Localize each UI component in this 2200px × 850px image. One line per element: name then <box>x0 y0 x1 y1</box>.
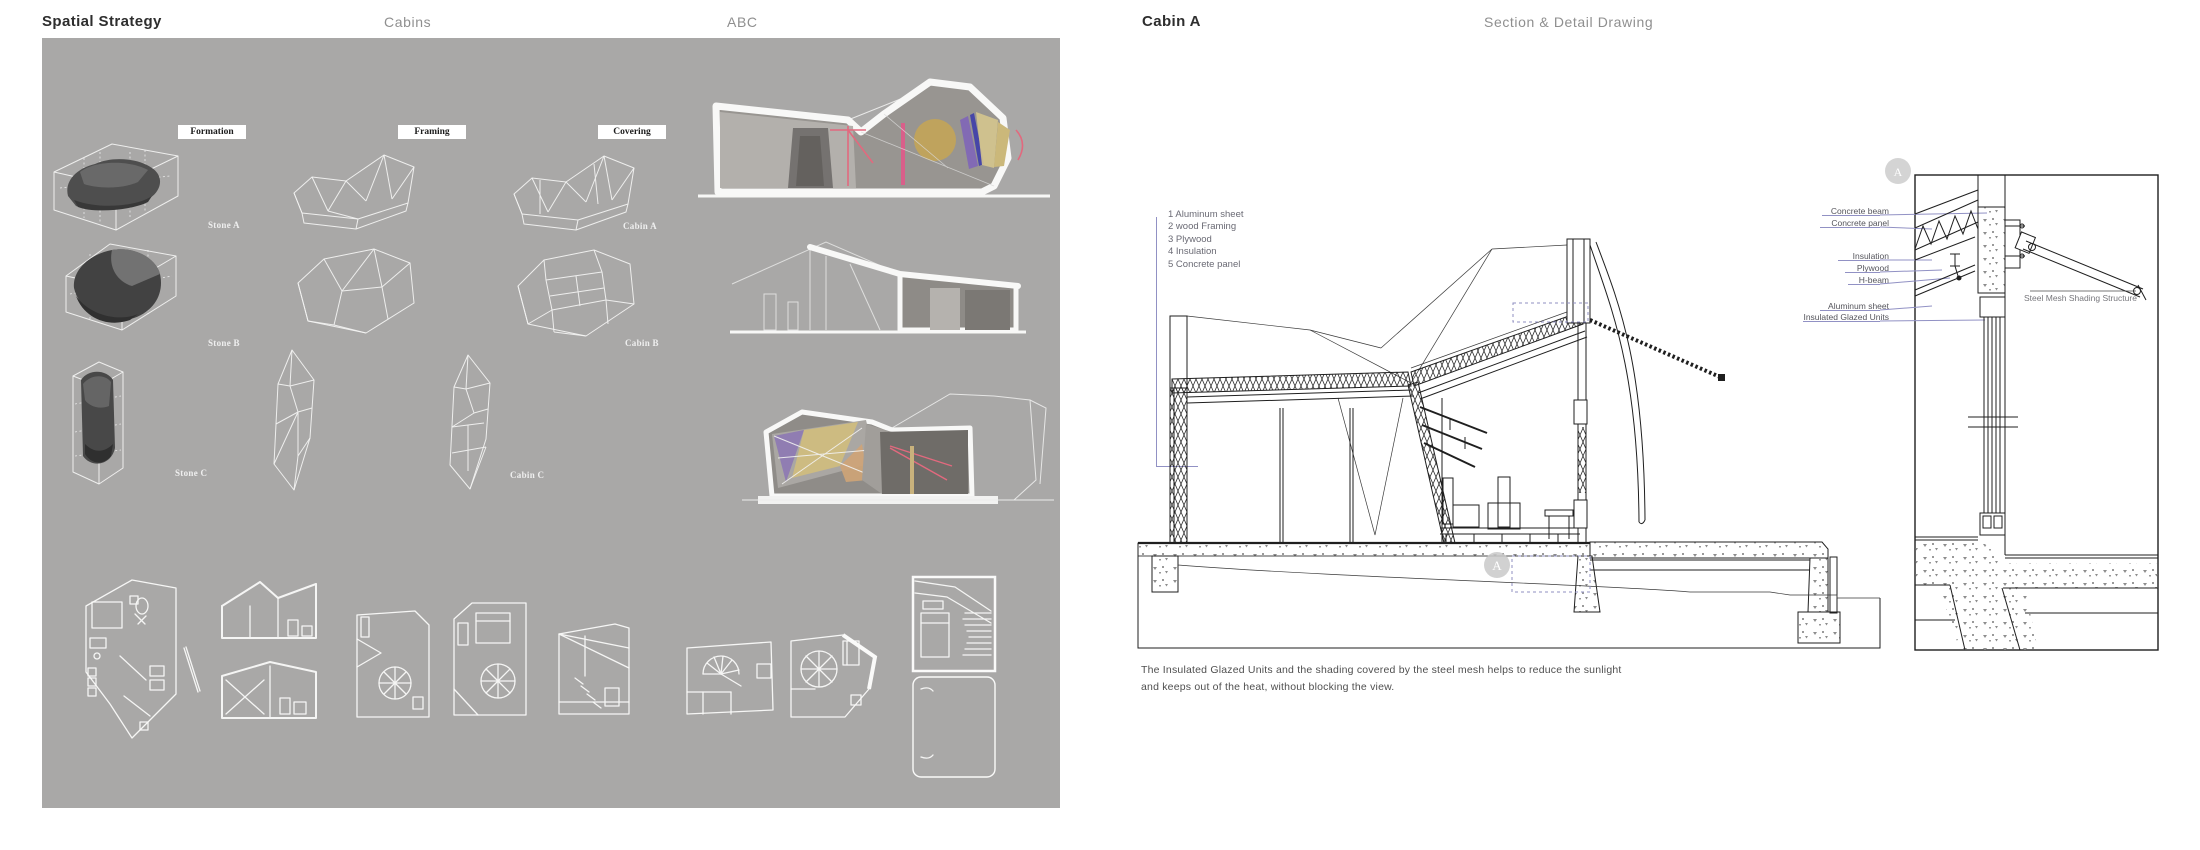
plan-small-cabin <box>555 618 635 722</box>
right-page-title: Cabin A <box>1142 13 1201 30</box>
left-page-title: Spatial Strategy <box>42 13 162 30</box>
column-label-framing: Framing <box>398 125 466 139</box>
leader-concrete-beam <box>1822 215 1880 216</box>
covering-c-wireframe <box>438 351 500 493</box>
detail-callout-a: A <box>1894 165 1903 179</box>
leader-insulation <box>1838 260 1880 261</box>
framing-b-wireframe <box>288 241 426 341</box>
plan-with-spiral-stair-3 <box>787 631 881 723</box>
caption-line-2: and keeps out of the heat, without block… <box>1141 679 1622 696</box>
section-caption: The Insulated Glazed Units and the shadi… <box>1141 662 1622 696</box>
stone-c-label: Stone C <box>175 468 207 478</box>
plan-section-lower <box>220 658 322 724</box>
covering-b-wireframe <box>506 244 646 344</box>
column-label-formation: Formation <box>178 125 246 139</box>
stone-b-photo-diagram <box>60 236 182 336</box>
leader-plywood <box>1845 272 1880 273</box>
cabin-b-label: Cabin B <box>625 338 659 348</box>
leader-aluminum-sheet <box>1820 310 1880 311</box>
column-label-covering: Covering <box>598 125 666 139</box>
stone-a-photo-diagram <box>50 138 182 236</box>
detail-a-drawing: A <box>1880 150 2180 670</box>
cabin-c-section-rendering <box>742 388 1054 524</box>
stone-a-label: Stone A <box>208 220 240 230</box>
plan-cabin-a <box>80 576 204 744</box>
plan-with-spiral-stair-1 <box>353 605 433 723</box>
leader-h-beam <box>1848 284 1880 285</box>
cabin-a-main-section-drawing: A <box>1130 225 1890 655</box>
detail-label-steel-mesh: Steel Mesh Shading Structure <box>2024 293 2137 303</box>
section-callout-a: A <box>1492 558 1502 573</box>
cabin-c-label: Cabin C <box>510 470 544 480</box>
cabin-b-section-rendering <box>730 222 1026 340</box>
stone-c-photo-diagram <box>67 356 129 490</box>
cabin-a-label: Cabin A <box>623 221 657 231</box>
right-page-subtitle: Section & Detail Drawing <box>1484 14 1653 30</box>
leader-concrete-panel <box>1820 227 1880 228</box>
framing-c-wireframe <box>264 346 322 496</box>
plan-two-level <box>907 571 1001 783</box>
spatial-strategy-board: Formation Framing Covering Stone A <box>42 38 1060 808</box>
plan-with-spiral-stair-2 <box>450 593 530 723</box>
cabin-a-section-rendering <box>698 68 1050 206</box>
plan-section-upper <box>220 576 322 642</box>
material-item-1: 1 Aluminum sheet <box>1168 209 1244 221</box>
leader-insulated-glazed-units <box>1803 321 1880 322</box>
caption-line-1: The Insulated Glazed Units and the shadi… <box>1141 662 1622 679</box>
left-header-cabins: Cabins <box>384 14 431 30</box>
left-header-abc: ABC <box>727 14 758 30</box>
stone-b-label: Stone B <box>208 338 240 348</box>
plan-with-fan-stair <box>683 636 777 722</box>
framing-a-wireframe <box>288 141 426 239</box>
